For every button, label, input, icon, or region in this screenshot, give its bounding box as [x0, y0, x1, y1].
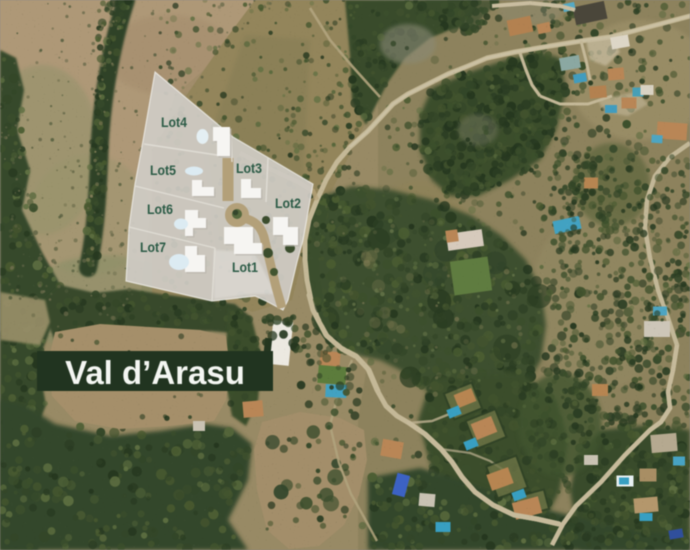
svg-text:Lot2: Lot2: [275, 195, 301, 211]
svg-text:Lot3: Lot3: [236, 160, 262, 176]
svg-text:Lot1: Lot1: [232, 259, 258, 275]
svg-text:Lot4: Lot4: [161, 114, 187, 130]
svg-text:Lot6: Lot6: [147, 201, 173, 217]
svg-text:Val d’Arasu: Val d’Arasu: [65, 354, 245, 391]
svg-text:Lot7: Lot7: [140, 239, 166, 255]
svg-text:Lot5: Lot5: [150, 162, 176, 178]
